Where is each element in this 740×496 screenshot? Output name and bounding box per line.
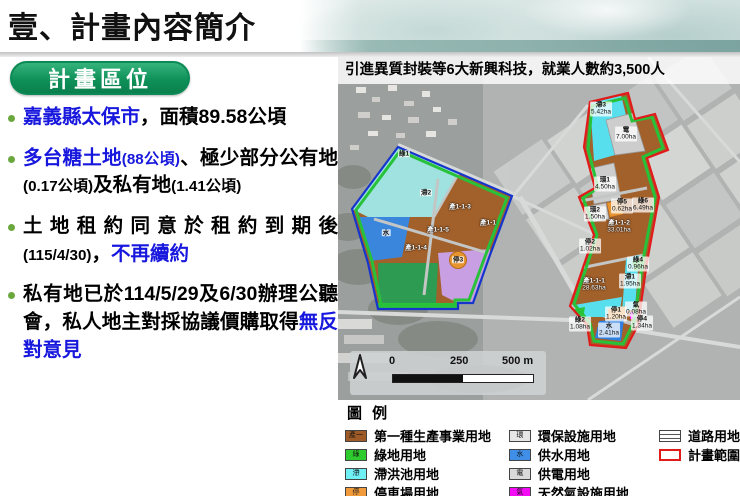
legend-item: 綠綠地用地 (345, 445, 509, 464)
legend-columns: 產一第一種生產事業用地綠綠地用地滯滯洪池用地停停車場用地 環環保設施用地水供水用… (345, 426, 740, 496)
legend-item: 氣天然氣設施用地 (509, 483, 659, 496)
legend-label: 道路用地 (688, 426, 740, 445)
legend-item: 產一第一種生產事業用地 (345, 426, 509, 445)
landuse-swatch: 綠 (345, 449, 367, 461)
scale-tick-0: 0 (389, 355, 395, 367)
legend-label: 綠地用地 (374, 445, 426, 464)
map-parcel-label: 綠1 (398, 150, 410, 157)
map-parcel-label: 產1-1-233.01ha (606, 220, 632, 235)
legend-label: 供電用地 (538, 464, 590, 483)
legend-label: 滯洪池用地 (374, 464, 439, 483)
legend-label: 計畫範圍 (688, 445, 740, 464)
legend-title: 圖 例 (347, 402, 740, 423)
map-parcel-label: 氣0.08ha (625, 302, 647, 317)
legend-column-1: 產一第一種生產事業用地綠綠地用地滯滯洪池用地停停車場用地 (345, 426, 509, 496)
legend-item: 計畫範圍 (659, 445, 740, 464)
boundary-swatch (659, 449, 681, 461)
section-badge: 計畫區位 (10, 61, 190, 95)
bullet-text: 私有地已於114/5/29及6/30辦理公聽會，私人地主對採協議價購取得 (23, 283, 338, 333)
bullet-item: 私有地已於114/5/29及6/30辦理公聽會，私人地主對採協議價購取得無反對意… (6, 281, 338, 364)
map-parcel-label: 綠40.96ha (627, 257, 649, 272)
scale-bar: 0 250 500 m (350, 351, 546, 395)
map-parcel-label: 電7.00ha (615, 127, 637, 142)
title-banner: 壹、計畫內容簡介 (0, 0, 740, 52)
bullet-list: 嘉義縣太保市，面積89.58公頃多台糖土地(88公頃)、極少部分公有地(0.17… (6, 104, 338, 378)
legend-label: 停車場用地 (374, 483, 439, 496)
map-parcel-label: 環21.50ha (584, 207, 606, 222)
swatch-char: 電 (516, 470, 523, 477)
map-parcel-label: 停41.34ha (631, 316, 653, 331)
bullet-text: 、極少部分公有地 (180, 147, 338, 169)
legend-column-2: 環環保設施用地水供水用地電供電用地氣天然氣設施用地 (509, 426, 659, 496)
landuse-swatch: 產一 (345, 430, 367, 442)
page-title: 壹、計畫內容簡介 (8, 3, 256, 47)
legend-label: 第一種生產事業用地 (374, 426, 491, 445)
swatch-char: 水 (516, 451, 523, 458)
landuse-swatch: 電 (509, 468, 531, 480)
legend-item: 滯滯洪池用地 (345, 464, 509, 483)
map-parcel-label: 滯11.95ha (619, 274, 641, 289)
bullet-text: 多台糖土地 (23, 147, 122, 169)
landuse-swatch: 滯 (345, 468, 367, 480)
legend-label: 供水用地 (538, 445, 590, 464)
swatch-char: 環 (516, 432, 523, 439)
swatch-char: 綠 (353, 451, 360, 458)
bullet-text: (0.17公頃) (23, 178, 93, 195)
landuse-swatch: 氣 (509, 487, 531, 496)
bullet-item: 土地租約同意於租約到期後(115/4/30)，不再續約 (6, 213, 338, 268)
map-parcel-label: 滯35.42ha (590, 102, 612, 117)
map-parcel-label: 產1-1-3 (448, 203, 472, 210)
bullet-text: 嘉義縣太保市 (23, 106, 140, 128)
slide: 壹、計畫內容簡介 計畫區位 嘉義縣太保市，面積89.58公頃多台糖土地(88公頃… (0, 0, 740, 496)
legend-label: 天然氣設施用地 (538, 483, 629, 496)
legend-item: 水供水用地 (509, 445, 659, 464)
legend-item: 環環保設施用地 (509, 426, 659, 445)
bullet-item: 多台糖土地(88公頃)、極少部分公有地(0.17公頃)及私有地(1.41公頃) (6, 145, 338, 200)
map-parcel-label: 產1-1-128.63ha (581, 278, 607, 293)
bullet-text: ， (91, 243, 111, 265)
swatch-char: 氣 (516, 489, 523, 496)
legend-label: 環保設施用地 (538, 426, 616, 445)
legend-item: 電供電用地 (509, 464, 659, 483)
site-map: 滯35.42ha電7.00ha環14.50ha環21.50ha停50.62ha綠… (338, 57, 740, 400)
landuse-swatch: 水 (509, 449, 531, 461)
bullet-text: ，面積89.58公頃 (140, 106, 286, 128)
banner-watercolor-art (300, 0, 740, 52)
scale-tick-250: 250 (450, 355, 468, 367)
bullet-text: 及私有地 (93, 174, 171, 196)
map-parcel-label: 環14.50ha (594, 177, 616, 192)
legend-item: 道路用地 (659, 426, 740, 445)
swatch-char: 產一 (349, 432, 363, 439)
scale-tick-500: 500 m (502, 355, 533, 367)
legend: 圖 例 產一第一種生產事業用地綠綠地用地滯滯洪池用地停停車場用地 環環保設施用地… (345, 400, 740, 496)
scale-bar-segments (392, 374, 534, 383)
map-parcel-label: 產1-1 (479, 219, 497, 226)
map-parcel-label: 停50.62ha (611, 199, 633, 214)
bullet-text: 不再續約 (111, 243, 189, 265)
map-parcel-label: 綠66.49ha (632, 198, 654, 213)
map-parcel-label: 產1-1-5 (426, 226, 450, 233)
map-parcel-label: 產1-1-4 (404, 244, 428, 251)
legend-item: 停停車場用地 (345, 483, 509, 496)
bullet-text: (1.41公頃) (171, 178, 241, 195)
map-labels: 滯35.42ha電7.00ha環14.50ha環21.50ha停50.62ha綠… (338, 57, 740, 400)
landuse-swatch: 停 (345, 487, 367, 496)
swatch-char: 停 (353, 489, 360, 496)
bullet-text: (115/4/30) (23, 247, 91, 264)
legend-column-3: 道路用地計畫範圍 (659, 426, 740, 496)
map-parcel-label: 水 (382, 229, 391, 236)
bullet-text: (88公頃) (122, 151, 180, 168)
map-parcel-label: 停21.02ha (579, 239, 601, 254)
map-parcel-label: 滯2 (420, 189, 432, 196)
bullet-text: 土地租約同意於租約到期後 (23, 215, 338, 237)
map-parcel-label: 停11.20ha (605, 307, 627, 322)
road-swatch (659, 430, 681, 442)
map-parcel-label: 綠21.08ha (569, 317, 591, 332)
map-parcel-label: 停3 (452, 256, 464, 263)
landuse-swatch: 環 (509, 430, 531, 442)
map-parcel-label: 水2.41ha (598, 323, 620, 338)
north-arrow-icon (350, 351, 370, 381)
swatch-char: 滯 (353, 470, 360, 477)
map-header-caption: 引進異質封裝等6大新興科技，就業人數約3,500人 (338, 57, 740, 84)
bullet-item: 嘉義縣太保市，面積89.58公頃 (6, 104, 338, 132)
